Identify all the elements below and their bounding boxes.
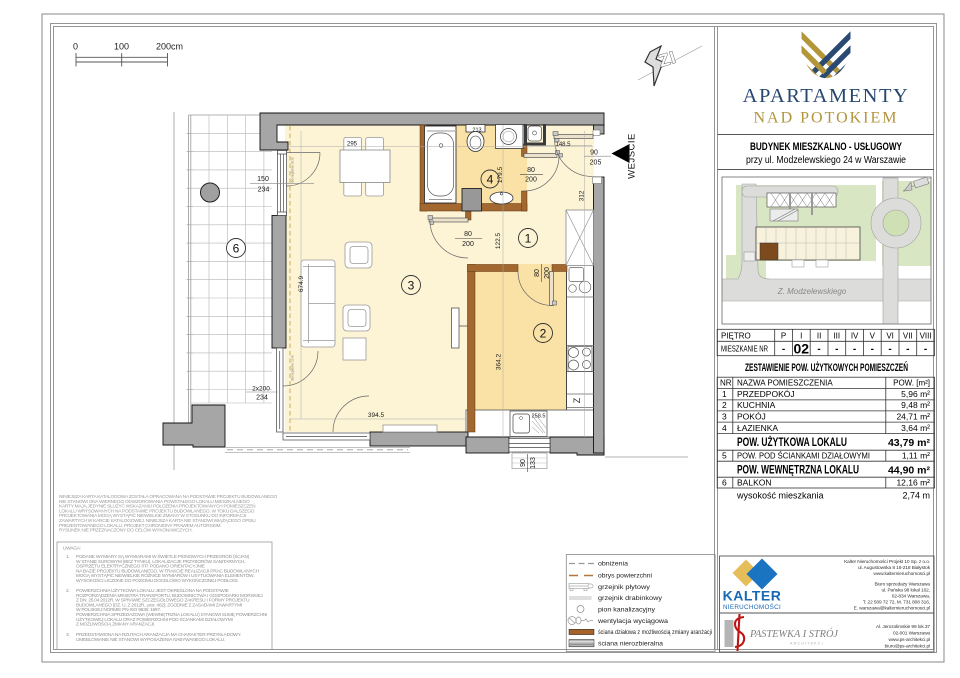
svg-text:100: 100 bbox=[114, 42, 129, 52]
svg-text:200: 200 bbox=[525, 177, 537, 184]
svg-text:-: - bbox=[853, 344, 856, 355]
svg-text:2: 2 bbox=[540, 326, 547, 340]
svg-text:4: 4 bbox=[487, 172, 494, 186]
svg-text:VI: VI bbox=[886, 332, 894, 341]
svg-text:NIERUCHOMOŚCI: NIERUCHOMOŚCI bbox=[723, 602, 781, 611]
svg-text:133: 133 bbox=[530, 457, 537, 469]
svg-text:3.: 3. bbox=[66, 632, 70, 638]
svg-text:POW. WEWNĘTRZNA LOKALU: POW. WEWNĘTRZNA LOKALU bbox=[737, 464, 859, 476]
svg-text:NAD POTOKIEM: NAD POTOKIEM bbox=[753, 110, 898, 127]
svg-text:258.5: 258.5 bbox=[532, 414, 546, 420]
svg-text:1: 1 bbox=[525, 231, 532, 245]
svg-text:4: 4 bbox=[722, 423, 727, 433]
svg-text:674.9: 674.9 bbox=[298, 275, 305, 292]
svg-text:3: 3 bbox=[722, 411, 727, 421]
svg-text:1.: 1. bbox=[66, 554, 70, 560]
svg-text:E. warszawa@kalternieruchomosc: E. warszawa@kalternieruchomosci.pl bbox=[854, 606, 930, 612]
svg-text:POW. UŻYTKOWA LOKALU: POW. UŻYTKOWA LOKALU bbox=[737, 436, 847, 449]
svg-text:5,96 m²: 5,96 m² bbox=[901, 389, 930, 399]
svg-text:200: 200 bbox=[544, 267, 551, 279]
svg-text:obrys powierzchni: obrys powierzchni bbox=[598, 573, 652, 580]
svg-text:90: 90 bbox=[520, 459, 527, 467]
svg-text:VIII: VIII bbox=[920, 332, 932, 341]
svg-text:KALTER: KALTER bbox=[723, 588, 782, 604]
svg-text:2x200: 2x200 bbox=[252, 386, 270, 393]
svg-text:www.kalternieruchomosci.pl: www.kalternieruchomosci.pl bbox=[873, 571, 930, 577]
svg-text:UMEBLOWANIE NIE STANOWI WYPOSA: UMEBLOWANIE NIE STANOWI WYPOSAŻENIA NABY… bbox=[76, 636, 225, 643]
svg-text:BALKON: BALKON bbox=[737, 478, 772, 488]
svg-text:pion kanalizacyjny: pion kanalizacyjny bbox=[598, 607, 656, 614]
svg-text:02: 02 bbox=[794, 341, 810, 357]
svg-text:przy ul. Modzelewskiego 24 w W: przy ul. Modzelewskiego 24 w Warszawie bbox=[746, 155, 906, 166]
svg-text:364.2: 364.2 bbox=[496, 353, 503, 370]
svg-text:PRZEDPOKÓJ: PRZEDPOKÓJ bbox=[737, 389, 795, 399]
svg-text:ZESTAWIENIE POW. UŻYTKOWYCH PO: ZESTAWIENIE POW. UŻYTKOWYCH POMIESZCZEŃ bbox=[745, 361, 908, 374]
svg-text:90: 90 bbox=[590, 150, 598, 157]
svg-text:V: V bbox=[870, 332, 876, 341]
svg-text:PASTEWKA I STRÓJ: PASTEWKA I STRÓJ bbox=[749, 628, 839, 640]
svg-text:02-834 Warszawa,: 02-834 Warszawa, bbox=[892, 594, 930, 600]
svg-text:POWIERZCHNIA UŻYTKOWA LOKALU J: POWIERZCHNIA UŻYTKOWA LOKALU JEST OKREŚL… bbox=[76, 586, 229, 594]
svg-text:3: 3 bbox=[408, 278, 415, 292]
svg-text:IV: IV bbox=[851, 332, 859, 341]
svg-text:UWAGA:: UWAGA: bbox=[63, 546, 81, 552]
svg-text:grzejnik drabinkowy: grzejnik drabinkowy bbox=[598, 595, 663, 602]
svg-text:I: I bbox=[800, 332, 802, 341]
svg-text:POW. POD ŚCIANKAMI DZIAŁOWY: POW. POD ŚCIANKAMI DZIAŁOWYMI bbox=[737, 450, 870, 461]
svg-text:150: 150 bbox=[257, 176, 269, 183]
svg-text:3,64 m²: 3,64 m² bbox=[901, 423, 930, 433]
svg-text:-: - bbox=[871, 344, 874, 355]
svg-text:-: - bbox=[817, 344, 820, 355]
svg-text:122.5: 122.5 bbox=[495, 232, 502, 249]
svg-text:80: 80 bbox=[464, 231, 472, 238]
svg-text:PIĘTRO: PIĘTRO bbox=[721, 332, 751, 341]
svg-text:ściana działowa z możliwością: ściana działowa z możliwością zmiany ara… bbox=[598, 629, 712, 636]
svg-text:POW. [m²]: POW. [m²] bbox=[893, 378, 930, 387]
svg-text:wysokość mieszkania: wysokość mieszkania bbox=[736, 491, 824, 501]
svg-text:24,71 m²: 24,71 m² bbox=[896, 411, 930, 421]
svg-text:grzejnik płytowy: grzejnik płytowy bbox=[598, 584, 651, 591]
svg-text:PODANE WYMIARY SĄ WYMIARAMI W: PODANE WYMIARY SĄ WYMIARAMI W ŚWIETLE PI… bbox=[76, 552, 250, 560]
svg-text:biuro@ps-architekci.pl: biuro@ps-architekci.pl bbox=[885, 644, 930, 650]
svg-text:T. 22 509 72 72, M. 731 808 31: T. 22 509 72 72, M. 731 808 316, bbox=[863, 600, 930, 606]
svg-text:NAZWA POMIESZCZENIA: NAZWA POMIESZCZENIA bbox=[737, 378, 833, 387]
svg-text:ARCHITEKCI: ARCHITEKCI bbox=[790, 642, 824, 646]
svg-text:ul. Augustowska 8 15-218 Biały: ul. Augustowska 8 15-218 Białystok bbox=[858, 565, 931, 571]
svg-text:5: 5 bbox=[722, 451, 727, 461]
svg-text:394.5: 394.5 bbox=[368, 412, 385, 419]
svg-text:III: III bbox=[833, 332, 840, 341]
svg-text:-: - bbox=[835, 344, 838, 355]
svg-text:312: 312 bbox=[579, 190, 586, 201]
svg-text:docieplenie 3cm: docieplenie 3cm bbox=[291, 157, 295, 182]
svg-text:APARTAMENTY: APARTAMENTY bbox=[743, 85, 910, 107]
svg-text:234: 234 bbox=[258, 186, 270, 193]
svg-text:ściana nierozbieralna: ściana nierozbieralna bbox=[598, 641, 664, 648]
svg-text:ul. Pańska 98 lokal 102,: ul. Pańska 98 lokal 102, bbox=[881, 588, 930, 594]
svg-text:docieplenie 1cm: docieplenie 1cm bbox=[291, 355, 295, 380]
svg-text:2,74 m: 2,74 m bbox=[902, 491, 930, 501]
svg-text:www.ps-architekci.pl: www.ps-architekci.pl bbox=[889, 637, 930, 643]
svg-text:9,48 m²: 9,48 m² bbox=[901, 400, 930, 410]
svg-text:0: 0 bbox=[73, 42, 78, 52]
svg-text:6: 6 bbox=[722, 478, 727, 488]
svg-text:12,16 m²: 12,16 m² bbox=[896, 478, 930, 488]
svg-text:MIESZKANIE NR: MIESZKANIE NR bbox=[721, 345, 768, 354]
svg-text:POKÓJ: POKÓJ bbox=[737, 411, 766, 421]
svg-text:VII: VII bbox=[903, 332, 913, 341]
svg-text:KUCHNIA: KUCHNIA bbox=[737, 400, 776, 410]
svg-text:80: 80 bbox=[534, 269, 541, 277]
svg-text:Z: Z bbox=[572, 397, 582, 403]
svg-text:6: 6 bbox=[233, 241, 240, 255]
svg-text:-: - bbox=[782, 344, 785, 355]
svg-text:234: 234 bbox=[256, 395, 268, 402]
svg-text:Kalter Nieruchomości Projekt 1: Kalter Nieruchomości Projekt 10 Sp. z o.… bbox=[844, 559, 930, 565]
svg-text:RYSUNEK NIE PRZEZNACZONY DO CE: RYSUNEK NIE PRZEZNACZONY DO CELÓW WYKONA… bbox=[59, 527, 192, 534]
svg-text:200cm: 200cm bbox=[156, 42, 183, 52]
svg-text:-: - bbox=[924, 344, 927, 355]
svg-text:43,79 m²: 43,79 m² bbox=[888, 437, 931, 449]
svg-text:-: - bbox=[906, 344, 909, 355]
svg-text:P: P bbox=[781, 332, 786, 341]
svg-text:02-001 Warszawa: 02-001 Warszawa bbox=[893, 631, 930, 637]
svg-text:80: 80 bbox=[527, 167, 535, 174]
svg-text:295: 295 bbox=[347, 141, 358, 147]
svg-text:205: 205 bbox=[590, 160, 602, 167]
svg-text:obniżenia: obniżenia bbox=[598, 561, 629, 568]
svg-text:ŁAZIENKA: ŁAZIENKA bbox=[737, 423, 778, 433]
svg-text:II: II bbox=[817, 332, 821, 341]
svg-text:wentylacja wyciągowa: wentylacja wyciągowa bbox=[597, 618, 669, 625]
svg-text:1: 1 bbox=[722, 389, 727, 399]
svg-text:2: 2 bbox=[722, 400, 727, 410]
svg-text:44,90 m²: 44,90 m² bbox=[888, 464, 931, 476]
svg-text:200: 200 bbox=[462, 241, 474, 248]
svg-text:Biuro sprzedaży Warszawa: Biuro sprzedaży Warszawa bbox=[874, 582, 930, 588]
svg-text:NR: NR bbox=[720, 378, 732, 387]
svg-text:148.5: 148.5 bbox=[555, 142, 571, 148]
svg-text:-: - bbox=[888, 344, 891, 355]
svg-text:Z. Modzelewskiego: Z. Modzelewskiego bbox=[777, 287, 847, 296]
svg-text:1,11 m²: 1,11 m² bbox=[902, 451, 930, 461]
svg-text:Al. Jerozolimskie 99 lok.37: Al. Jerozolimskie 99 lok.37 bbox=[876, 624, 931, 630]
svg-text:WEJŚCIE: WEJŚCIE bbox=[626, 133, 638, 179]
svg-text:213: 213 bbox=[472, 128, 481, 134]
svg-text:2.: 2. bbox=[66, 588, 70, 594]
svg-text:BUDYNEK MIESZKALNO - USŁUGOWY: BUDYNEK MIESZKALNO - USŁUGOWY bbox=[750, 141, 902, 153]
